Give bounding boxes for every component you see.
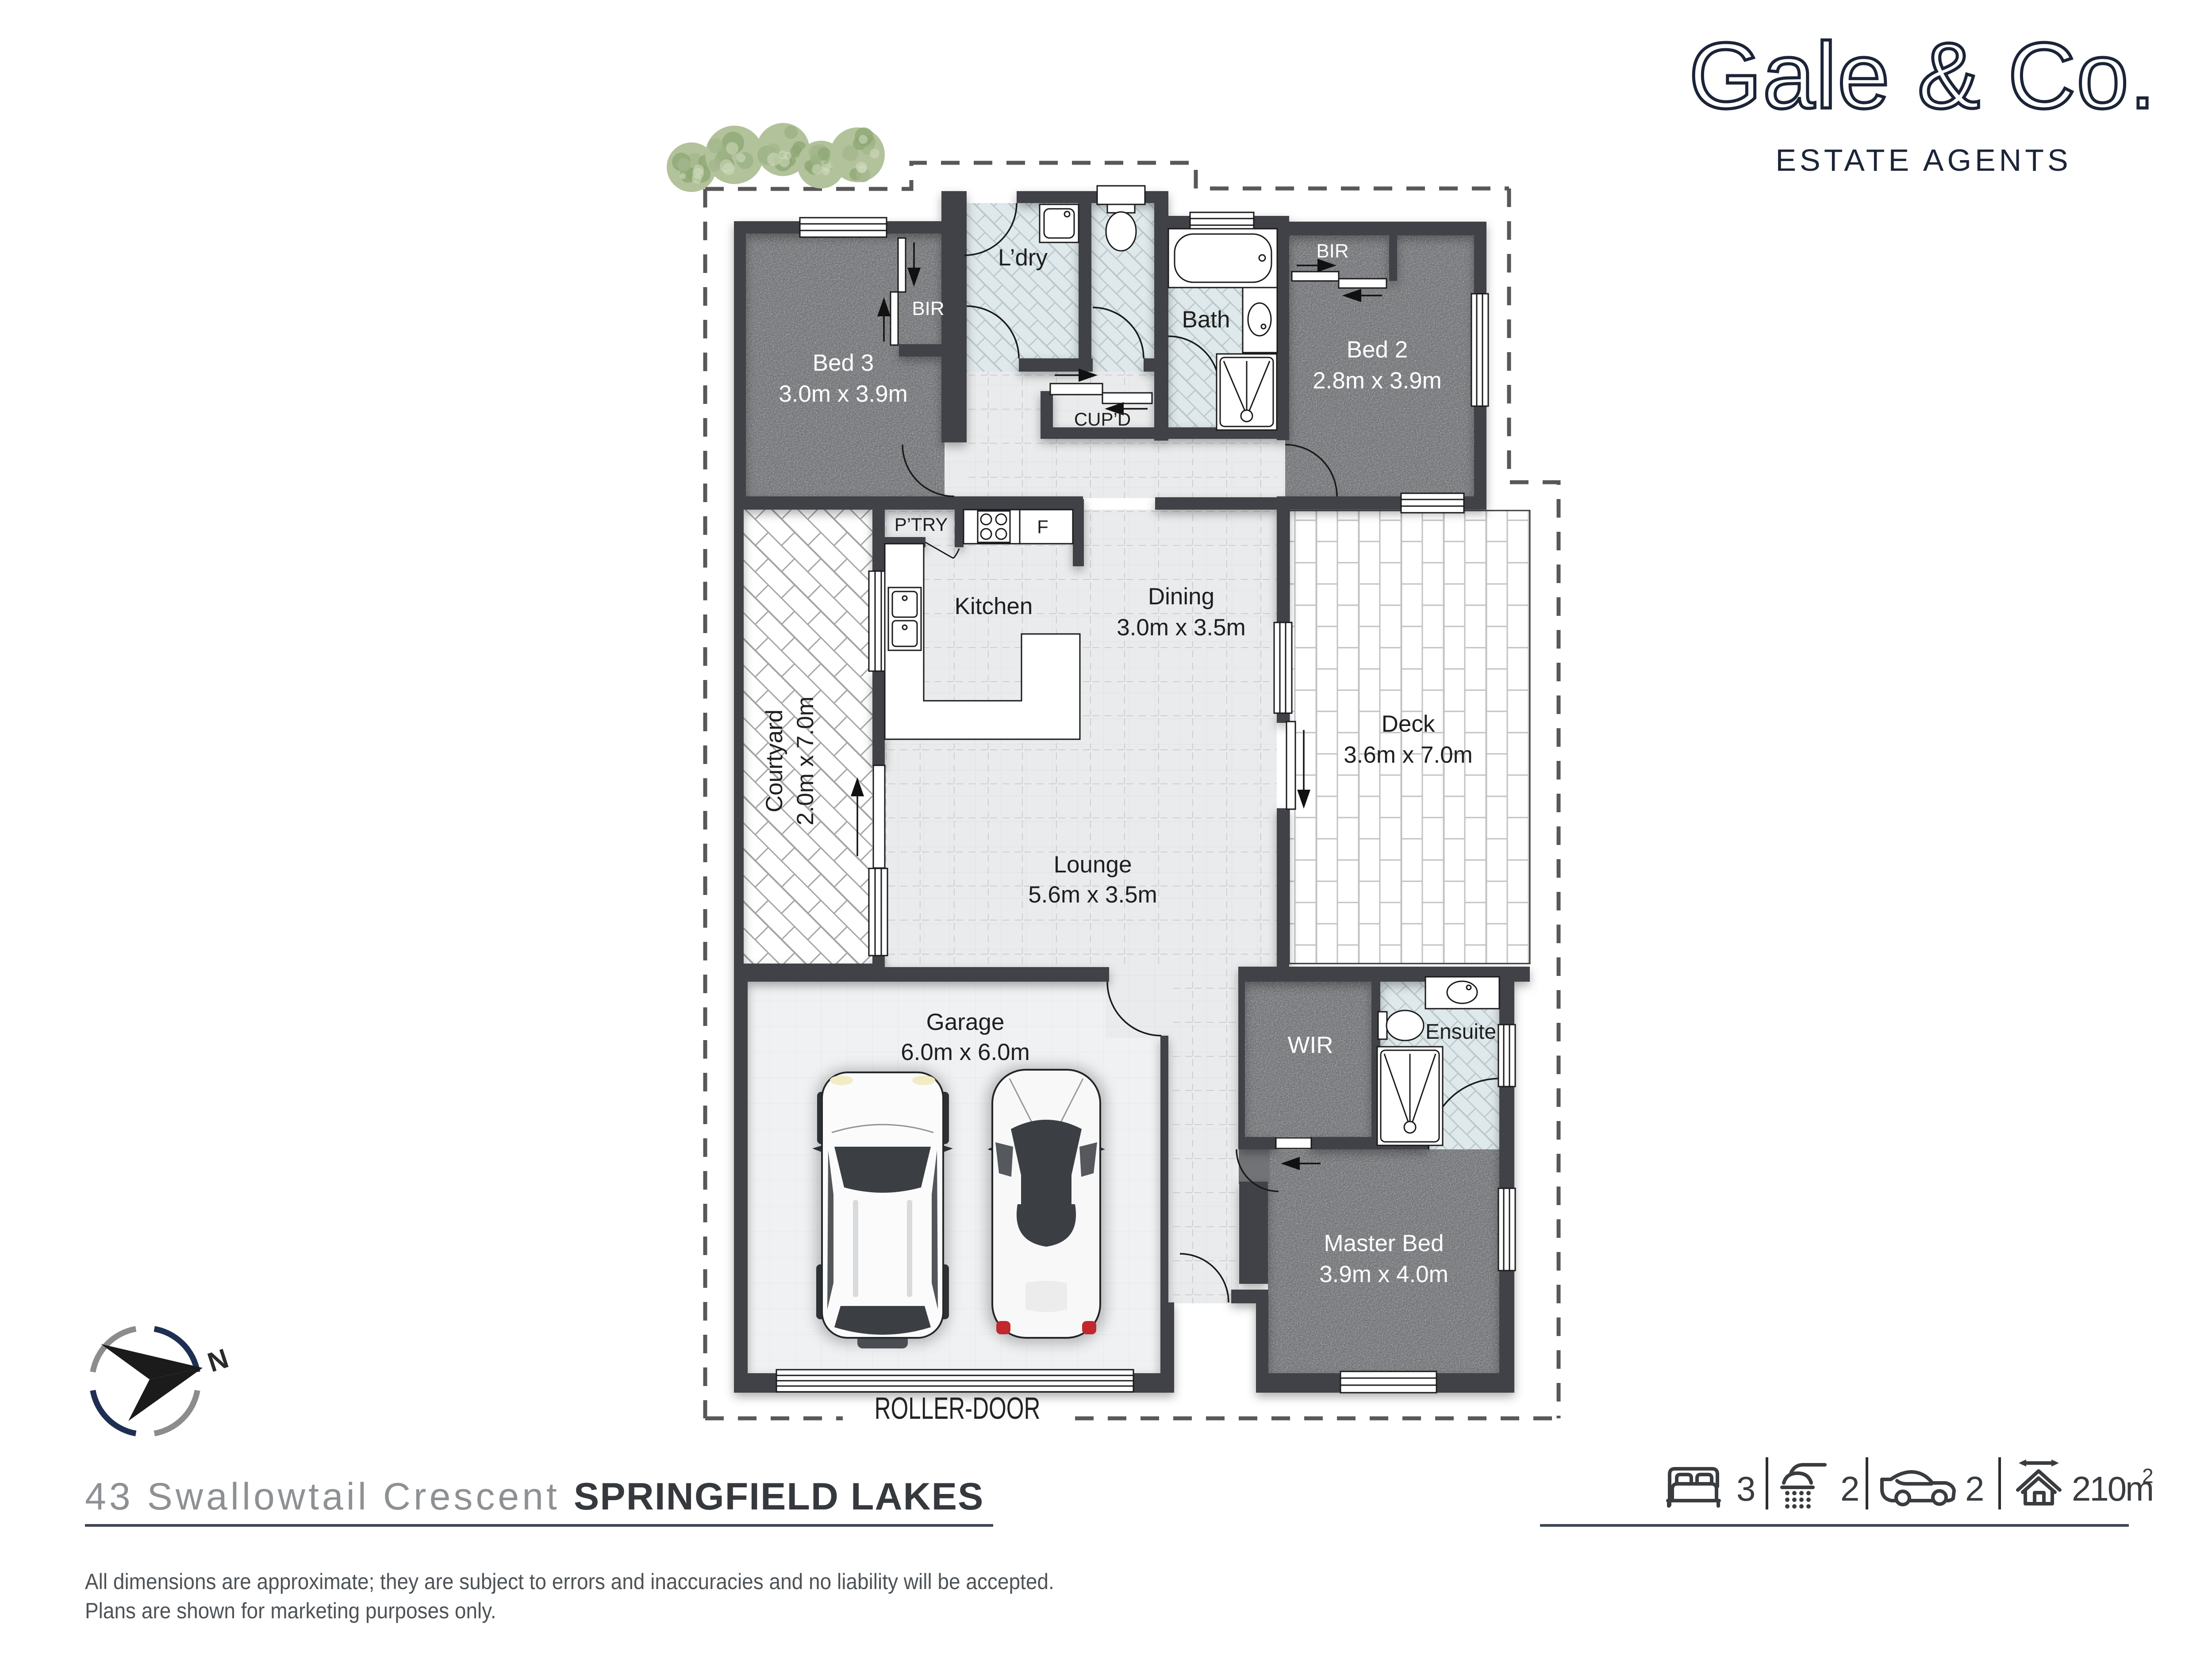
svg-text:3: 3 [1736,1469,1755,1508]
svg-text:L’dry: L’dry [998,245,1048,271]
svg-text:Bed 2: Bed 2 [1347,337,1408,363]
svg-text:Bath: Bath [1182,307,1230,333]
svg-text:43 Swallowtail Crescent SPRING: 43 Swallowtail Crescent SPRINGFIELD LAKE… [85,1475,984,1518]
svg-text:CUP’D: CUP’D [1074,409,1131,430]
svg-text:Deck: Deck [1382,711,1435,737]
svg-text:ESTATE AGENTS: ESTATE AGENTS [1775,143,2071,177]
svg-text:All dimensions are approximate: All dimensions are approximate; they are… [85,1570,1054,1594]
svg-text:2: 2 [1840,1469,1859,1508]
svg-text:2.8m x 3.9m: 2.8m x 3.9m [1313,368,1442,394]
svg-text:Kitchen: Kitchen [955,593,1033,619]
svg-text:Bed 3: Bed 3 [813,350,874,376]
svg-text:WIR: WIR [1287,1032,1333,1058]
svg-text:F: F [1037,516,1048,537]
svg-text:Master Bed: Master Bed [1324,1230,1444,1256]
svg-text:3.0m x 3.9m: 3.0m x 3.9m [779,381,908,407]
svg-text:P’TRY: P’TRY [895,514,948,535]
svg-text:Gale & Co.: Gale & Co. [1689,23,2157,128]
svg-text:ROLLER-DOOR: ROLLER-DOOR [875,1391,1041,1425]
svg-text:6.0m x 6.0m: 6.0m x 6.0m [901,1039,1030,1065]
svg-text:Courtyard: Courtyard [761,710,787,813]
svg-text:Dining: Dining [1148,584,1214,610]
svg-text:2: 2 [2142,1464,2154,1487]
svg-text:2: 2 [1965,1469,1984,1508]
svg-text:Lounge: Lounge [1054,852,1132,878]
svg-text:3.6m x 7.0m: 3.6m x 7.0m [1344,742,1473,768]
svg-text:Garage: Garage [926,1009,1005,1035]
svg-text:3.0m x 3.5m: 3.0m x 3.5m [1117,614,1246,641]
svg-text:5.6m x 3.5m: 5.6m x 3.5m [1028,882,1157,908]
svg-text:BIR: BIR [1316,240,1348,262]
svg-text:3.9m x 4.0m: 3.9m x 4.0m [1319,1261,1448,1287]
svg-text:210m: 210m [2072,1469,2153,1508]
svg-text:BIR: BIR [912,298,944,319]
svg-text:Ensuite: Ensuite [1425,1020,1496,1044]
svg-text:2.0m x 7.0m: 2.0m x 7.0m [792,696,818,826]
svg-text:Plans are shown for marketing: Plans are shown for marketing purposes o… [85,1599,496,1623]
